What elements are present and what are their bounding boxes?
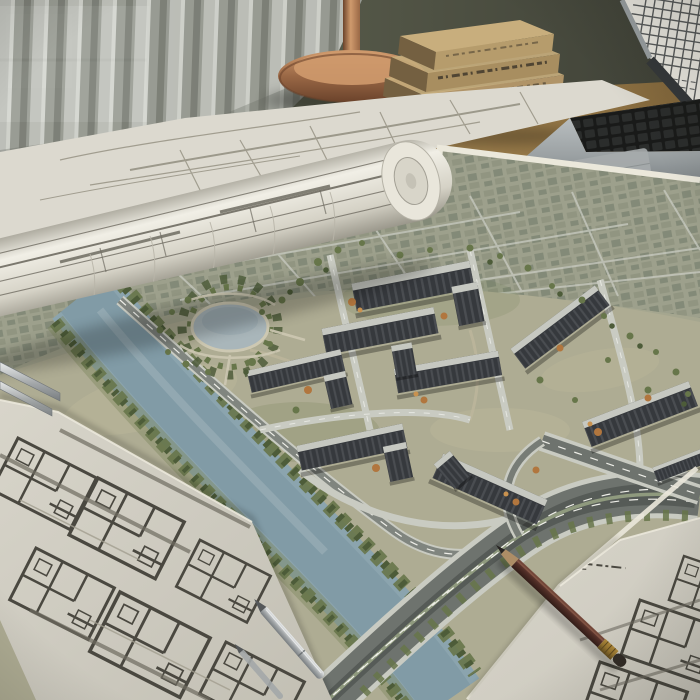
vignette-overlay <box>0 0 700 700</box>
scene-canvas <box>0 0 700 700</box>
scene-photo: Photorealistic scene of an architect's d… <box>0 0 700 700</box>
